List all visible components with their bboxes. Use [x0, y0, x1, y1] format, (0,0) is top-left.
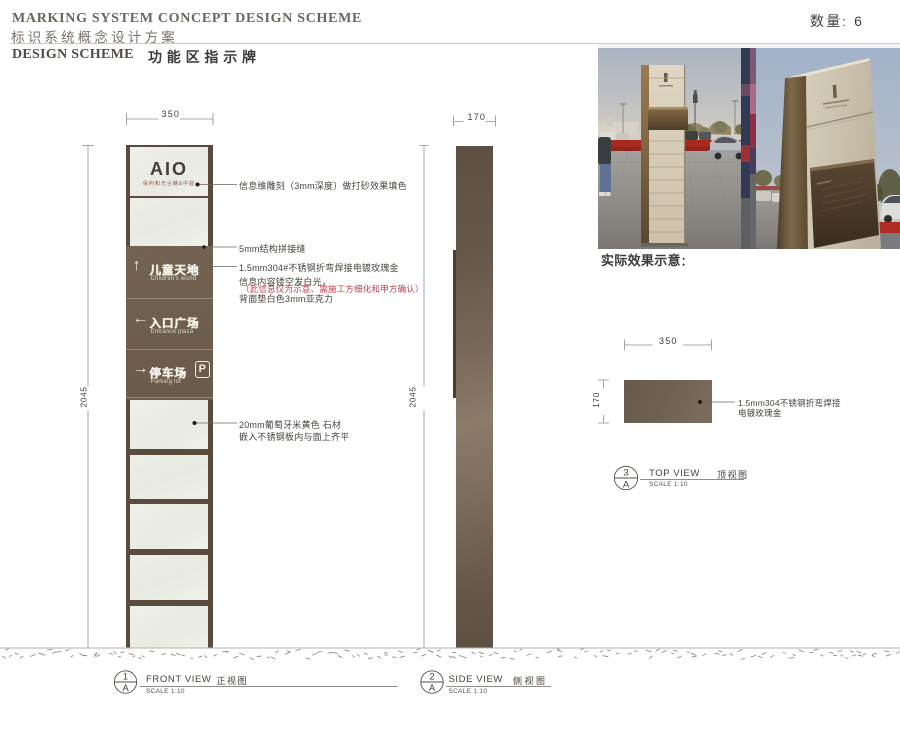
svg-text:A: A	[623, 480, 630, 491]
svg-text:1: 1	[123, 672, 128, 683]
svg-text:A: A	[122, 683, 129, 694]
svg-text:A: A	[429, 683, 436, 694]
svg-text:2: 2	[429, 672, 434, 683]
svg-text:3: 3	[623, 468, 628, 479]
